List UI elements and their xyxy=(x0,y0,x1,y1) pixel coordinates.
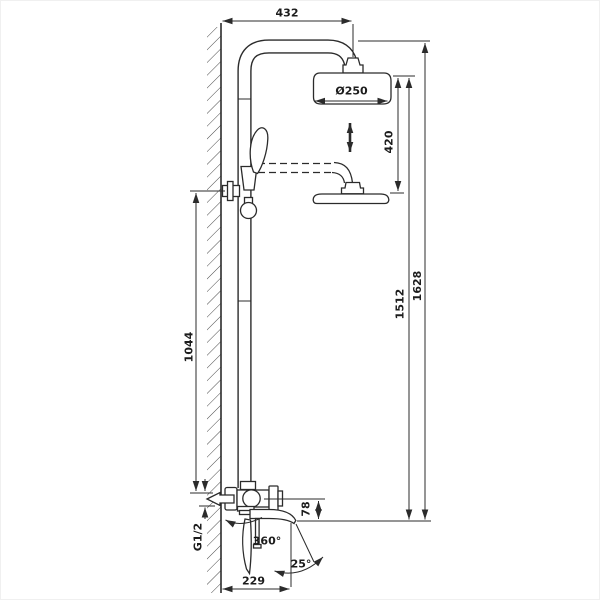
dim-d250-label: Ø250 xyxy=(335,85,368,98)
dim-420-label: 420 xyxy=(383,130,396,153)
label-360: 360° xyxy=(253,535,281,548)
wall-hatching xyxy=(207,27,221,593)
dim-1628-label: 1628 xyxy=(411,271,424,302)
dim-1044-label: 1044 xyxy=(183,331,196,362)
dim-1628: 1628 xyxy=(358,41,430,520)
bath-mixer xyxy=(225,482,296,574)
dim-432-label: 432 xyxy=(276,7,299,20)
dim-1512-label: 1512 xyxy=(394,289,407,320)
dim-25deg: 25° xyxy=(275,557,324,573)
technical-drawing-canvas: 432 Ø250 420 1512 1628 1044 78 G1/2 xyxy=(0,0,600,600)
dim-229: 229 xyxy=(223,575,290,590)
slider-knob xyxy=(241,203,257,219)
bracket-flange xyxy=(228,182,234,201)
hand-shower-handle xyxy=(250,128,268,174)
angle-label: 25° xyxy=(291,558,312,571)
dim-1512: 1512 xyxy=(394,78,410,520)
shower-system-diagram: 432 Ø250 420 1512 1628 1044 78 G1/2 xyxy=(1,1,600,600)
mixer-pipe-tee xyxy=(241,482,256,490)
shower-column-pipe xyxy=(238,47,351,489)
wall xyxy=(207,23,221,593)
dim-229-label: 229 xyxy=(242,575,265,588)
lowered-arm-elbow-inner xyxy=(332,173,345,184)
pipe-outline xyxy=(245,47,352,489)
dim-g12-label: G1/2 xyxy=(192,523,205,551)
mixer-knob xyxy=(243,490,260,507)
lowered-head-connector-nut xyxy=(342,183,364,194)
lever-handle xyxy=(243,519,251,574)
wall-bracket xyxy=(223,182,240,201)
swivel-label: 360° xyxy=(253,535,281,548)
stream-slanted-edge xyxy=(296,524,314,562)
pipe-body xyxy=(245,47,352,489)
lowered-shower-head-disc xyxy=(313,194,389,204)
dim-78-label: 78 xyxy=(300,501,313,516)
spout-water-stream xyxy=(291,523,314,587)
overhead-shower-lowered-position xyxy=(258,163,389,204)
